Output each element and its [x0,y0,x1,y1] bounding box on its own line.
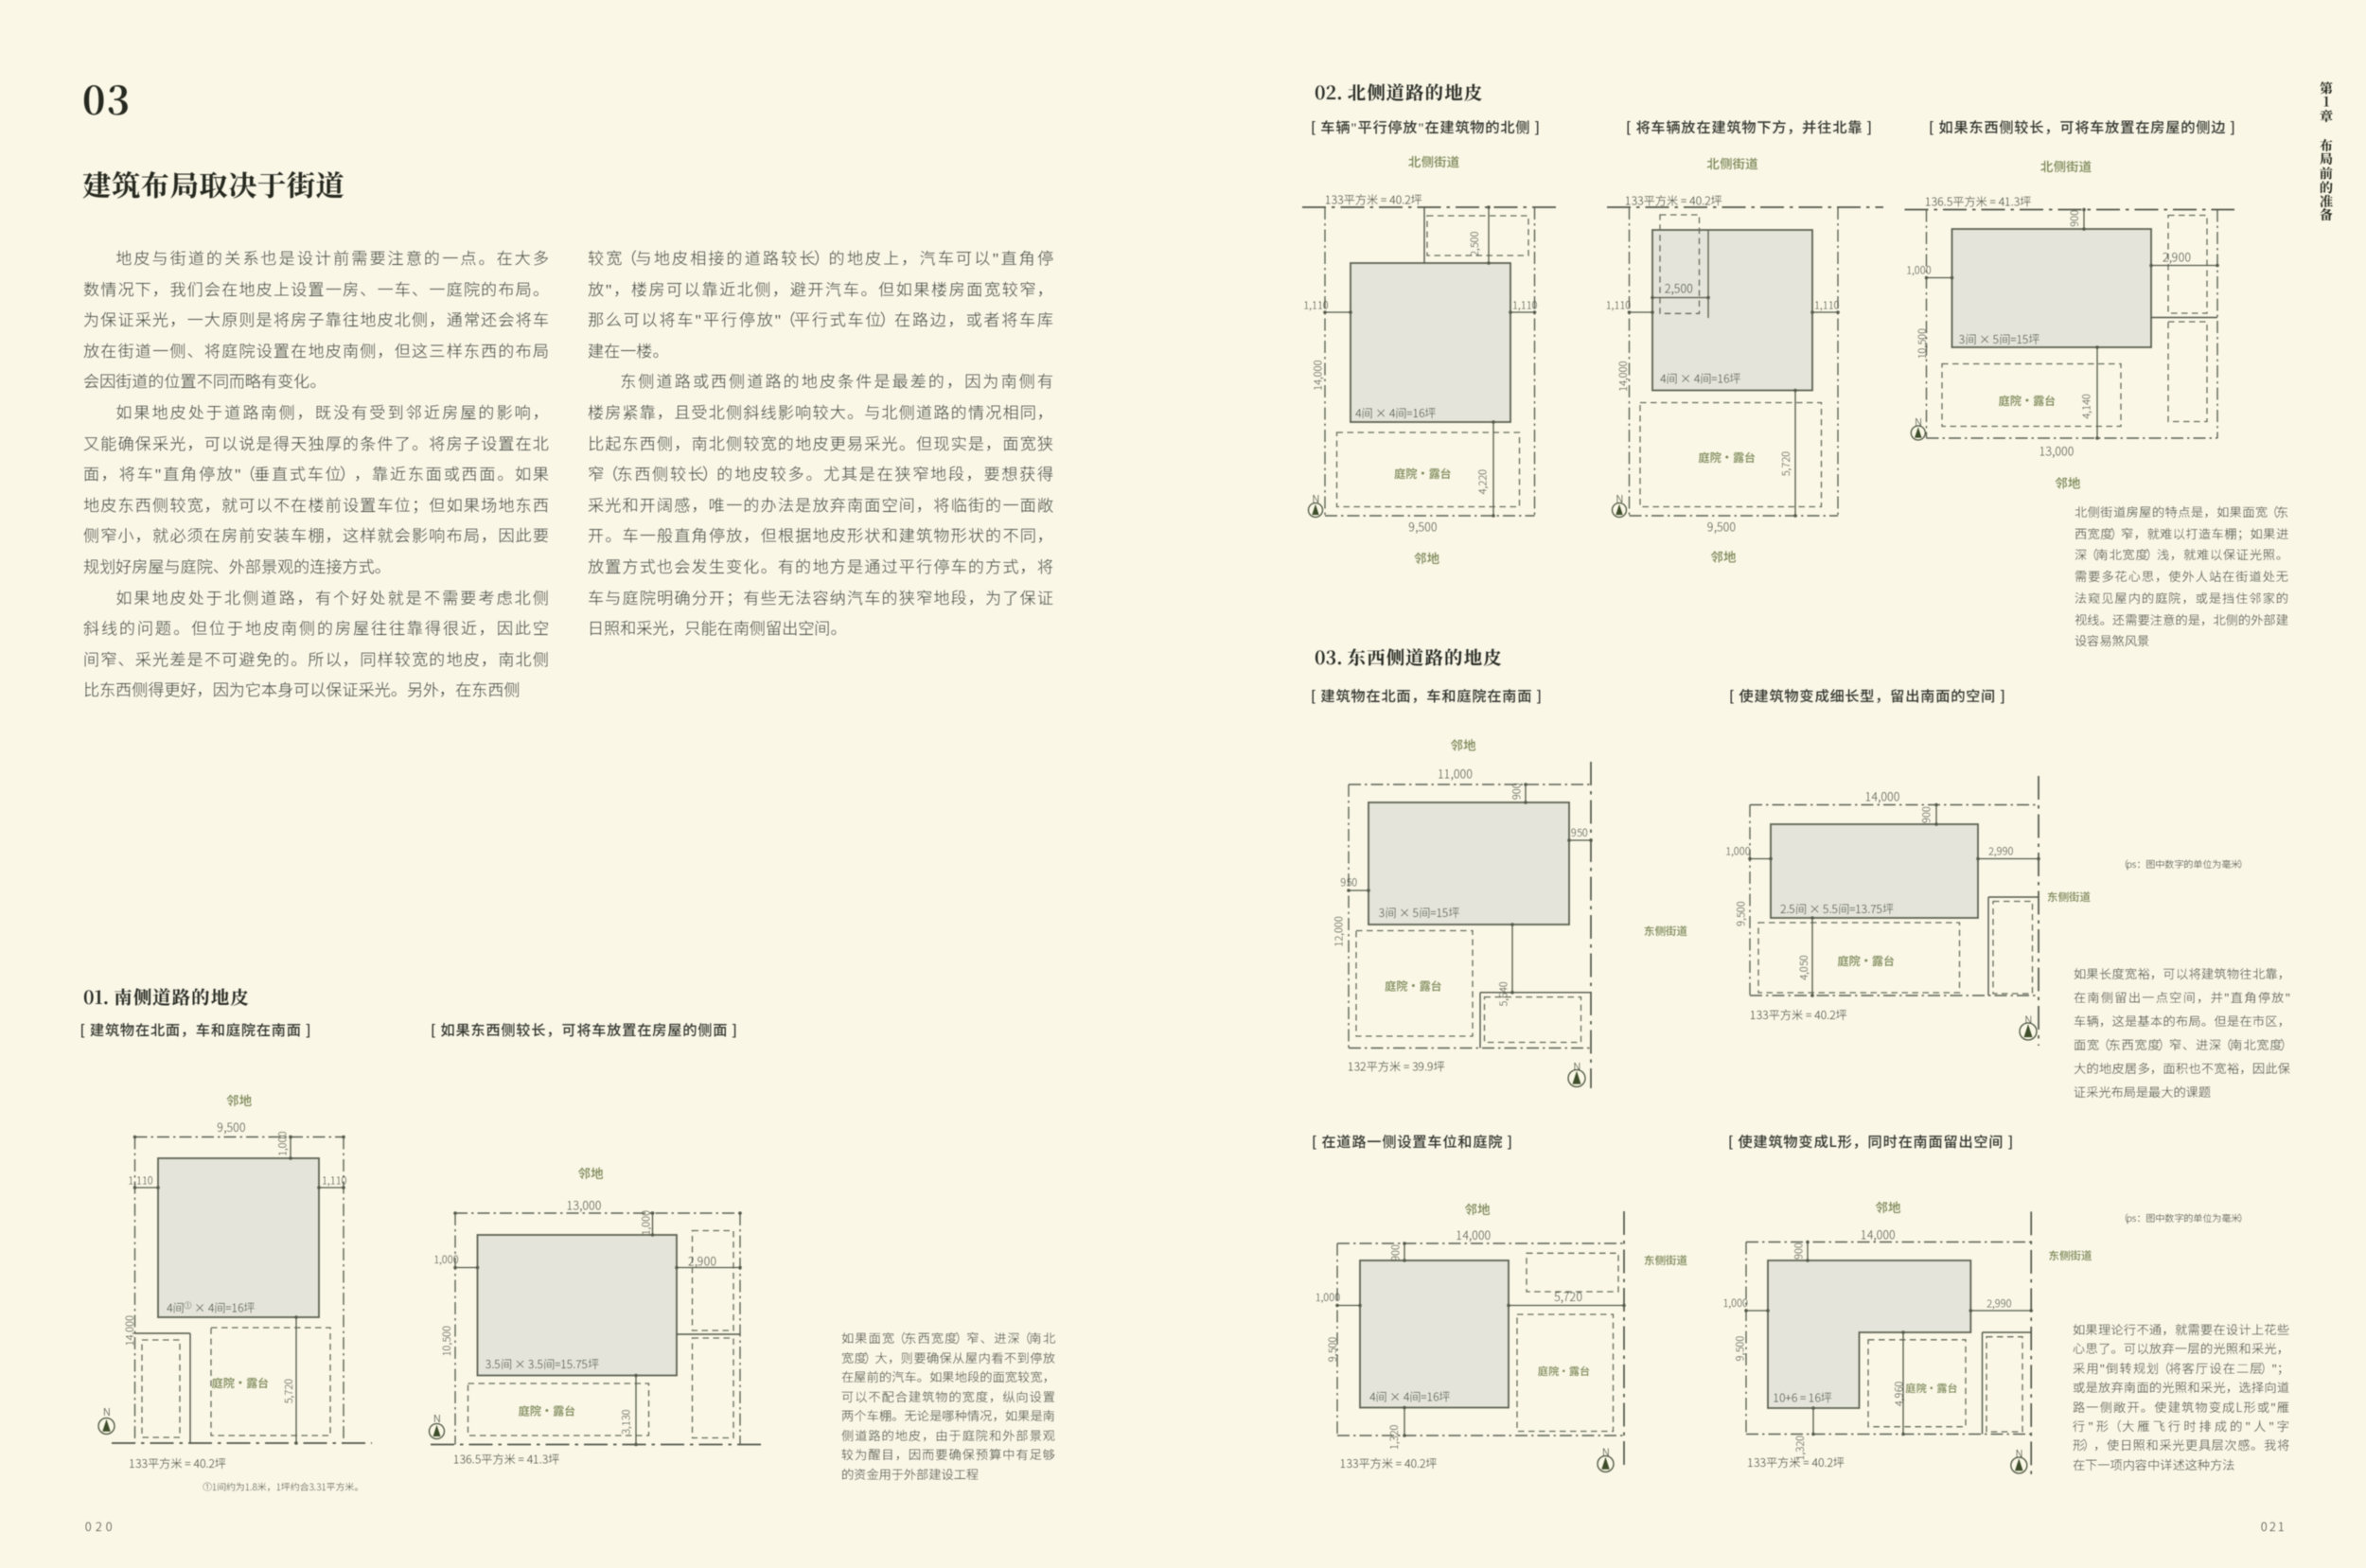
svg-text:14,000: 14,000 [1616,361,1631,392]
svg-text:1,000: 1,000 [639,1210,654,1236]
svg-text:14,000: 14,000 [122,1315,137,1347]
svg-text:1,000: 1,000 [1315,1290,1341,1305]
svg-text:1,320: 1,320 [1386,1424,1402,1450]
svg-text:133平方米 = 40.2坪: 133平方米 = 40.2坪 [1325,191,1422,208]
svg-text:133平方米 = 40.2坪: 133平方米 = 40.2坪 [1340,1454,1438,1471]
svg-text:5,720: 5,720 [1778,451,1793,477]
svg-text:4间 × 4间=16坪: 4间 × 4间=16坪 [1355,405,1436,421]
svg-text:4,220: 4,220 [1475,469,1491,495]
svg-text:邻地: 邻地 [1465,1199,1491,1218]
svg-text:9,500: 9,500 [1734,901,1749,926]
svg-text:13,000: 13,000 [567,1196,602,1214]
svg-text:N: N [433,1411,441,1426]
svg-text:136.5平方米 = 41.3坪: 136.5平方米 = 41.3坪 [453,1451,559,1468]
svg-text:3间 × 5间=15坪: 3间 × 5间=15坪 [1379,905,1459,921]
svg-text:庭院·露台: 庭院·露台 [1837,952,1895,969]
svg-text:1,000: 1,000 [1906,263,1932,278]
svg-text:133平方米 = 40.2坪: 133平方米 = 40.2坪 [129,1454,226,1471]
svg-text:950: 950 [1341,875,1358,890]
svg-text:北侧街道: 北侧街道 [1707,153,1758,172]
svg-text:14,000: 14,000 [1865,787,1900,805]
svg-text:14,000: 14,000 [1457,1225,1492,1243]
svg-text:庭院·露台: 庭院·露台 [1538,1364,1590,1379]
svg-text:庭院·露台: 庭院·露台 [1906,1381,1958,1396]
svg-text:1,110: 1,110 [1606,298,1632,313]
svg-text:1,110: 1,110 [1814,298,1840,313]
svg-text:13,000: 13,000 [2039,442,2075,460]
svg-text:2,500: 2,500 [1467,231,1482,256]
svg-text:11,000: 11,000 [1438,765,1473,783]
svg-text:2,900: 2,900 [688,1252,716,1270]
svg-text:4间 × 4间=16坪: 4间 × 4间=16坪 [1369,1388,1450,1404]
svg-text:12,000: 12,000 [1332,916,1347,947]
svg-text:1,000: 1,000 [1723,1295,1749,1311]
svg-text:N: N [103,1404,111,1419]
svg-text:10+6 = 16坪: 10+6 = 16坪 [1774,1390,1832,1406]
svg-text:9,500: 9,500 [1707,518,1736,536]
svg-text:2,990: 2,990 [1988,844,2014,859]
svg-text:东侧街道: 东侧街道 [1644,1253,1687,1268]
svg-text:1,110: 1,110 [1512,298,1538,313]
svg-text:N: N [1915,414,1922,430]
svg-text:邻地: 邻地 [226,1090,252,1109]
svg-text:1,110: 1,110 [128,1173,153,1189]
svg-text:133平方米 = 40.2坪: 133平方米 = 40.2坪 [1625,192,1722,209]
svg-text:900: 900 [1919,806,1934,823]
svg-text:N: N [2024,1013,2032,1028]
svg-text:5,640: 5,640 [1495,981,1510,1007]
svg-text:N: N [1573,1059,1580,1074]
svg-text:900: 900 [2067,210,2082,227]
svg-text:庭院·露台: 庭院·露台 [1999,392,2057,409]
svg-text:1,000: 1,000 [1725,844,1751,859]
svg-text:14,000: 14,000 [1311,360,1326,391]
svg-text:北侧街道: 北侧街道 [2040,156,2092,175]
svg-text:950: 950 [1571,825,1588,840]
svg-text:邻地: 邻地 [1451,735,1476,754]
svg-text:9,500: 9,500 [1733,1335,1748,1361]
svg-text:2,990: 2,990 [1986,1296,2012,1312]
svg-text:4间① × 4间=16坪: 4间① × 4间=16坪 [167,1300,255,1316]
svg-text:10,500: 10,500 [1915,328,1930,360]
svg-text:1,110: 1,110 [1303,298,1329,313]
svg-text:9,500: 9,500 [218,1118,246,1136]
svg-text:庭院·露台: 庭院·露台 [1385,978,1442,995]
svg-text:5,720: 5,720 [1554,1287,1582,1305]
svg-text:9,500: 9,500 [1409,518,1438,536]
svg-text:4间 × 4间=16坪: 4间 × 4间=16坪 [1660,371,1740,387]
svg-text:邻地: 邻地 [578,1163,604,1182]
svg-text:邻地: 邻地 [2055,473,2080,492]
svg-text:133平方米 = 40.2坪: 133平方米 = 40.2坪 [1750,1006,1847,1023]
svg-text:4,960: 4,960 [1891,1381,1906,1406]
svg-text:2,900: 2,900 [2163,248,2191,266]
svg-text:庭院·露台: 庭院·露台 [519,1402,576,1419]
svg-text:北侧街道: 北侧街道 [1408,151,1459,170]
svg-text:900: 900 [1388,1244,1404,1261]
svg-text:N: N [1602,1445,1610,1460]
svg-text:10,500: 10,500 [439,1326,454,1357]
svg-text:3.5间 × 3.5间=15.75坪: 3.5间 × 3.5间=15.75坪 [486,1356,599,1372]
svg-text:1,110: 1,110 [322,1173,347,1189]
svg-text:庭院·露台: 庭院·露台 [1698,449,1756,466]
svg-text:4,140: 4,140 [2079,394,2094,419]
svg-text:庭院·露台: 庭院·露台 [1394,465,1452,482]
svg-text:1,000: 1,000 [275,1131,291,1156]
svg-text:136.5平方米 = 41.3坪: 136.5平方米 = 41.3坪 [1925,193,2031,210]
svg-text:邻地: 邻地 [1875,1197,1900,1216]
svg-text:3间 × 5间=15坪: 3间 × 5间=15坪 [1959,331,2039,347]
svg-text:5,720: 5,720 [281,1379,296,1404]
svg-text:2,500: 2,500 [1665,279,1693,297]
svg-text:132平方米 = 39.9坪: 132平方米 = 39.9坪 [1348,1058,1445,1075]
svg-text:东侧街道: 东侧街道 [1644,924,1687,939]
svg-text:3,130: 3,130 [619,1409,634,1435]
svg-text:2.5间 × 5.5间=13.75坪: 2.5间 × 5.5间=13.75坪 [1780,901,1894,917]
svg-text:9,500: 9,500 [1325,1336,1340,1362]
svg-text:900: 900 [1510,783,1525,800]
svg-text:邻地: 邻地 [1710,547,1736,566]
svg-text:1,000: 1,000 [433,1252,459,1267]
svg-text:900: 900 [1792,1242,1807,1260]
svg-text:N: N [1312,491,1319,506]
svg-text:N: N [2015,1446,2022,1461]
svg-text:庭院·露台: 庭院·露台 [212,1374,270,1391]
svg-text:邻地: 邻地 [1414,548,1439,567]
svg-text:东侧街道: 东侧街道 [2047,890,2091,905]
svg-text:4,050: 4,050 [1796,955,1811,980]
svg-text:东侧街道: 东侧街道 [2049,1248,2092,1263]
svg-text:133平方米 = 40.2坪: 133平方米 = 40.2坪 [1747,1453,1845,1471]
svg-text:14,000: 14,000 [1861,1225,1896,1243]
svg-text:N: N [1616,491,1623,506]
